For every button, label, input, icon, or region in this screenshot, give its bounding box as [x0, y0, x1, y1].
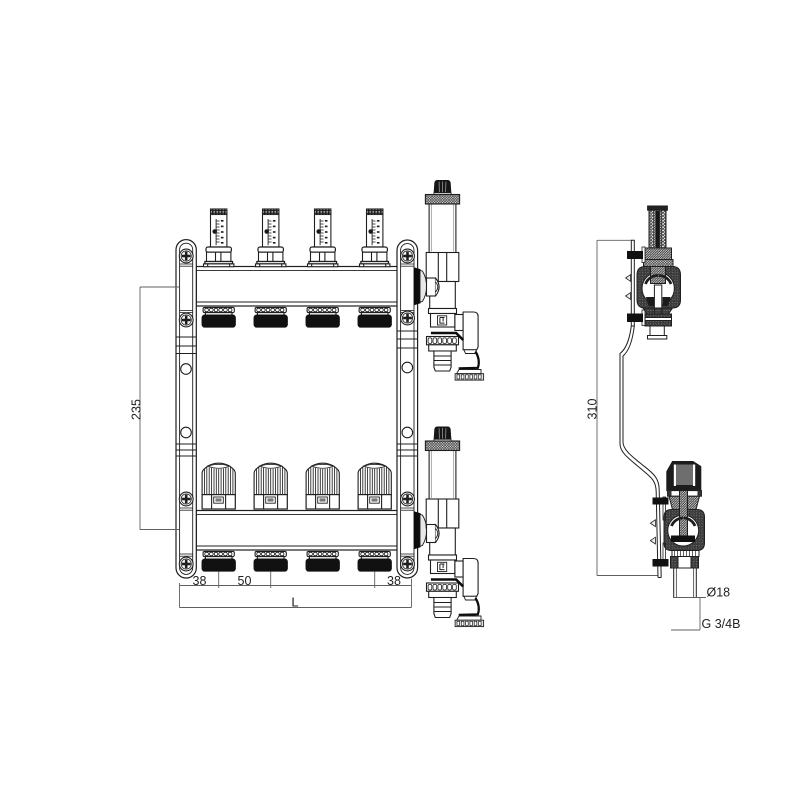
svg-text:L: L — [291, 595, 298, 610]
svg-text:Ø18: Ø18 — [707, 585, 731, 599]
svg-text:310: 310 — [586, 399, 600, 420]
svg-text:38: 38 — [193, 574, 207, 588]
svg-text:50: 50 — [238, 574, 252, 588]
svg-text:235: 235 — [129, 399, 143, 420]
svg-text:38: 38 — [387, 574, 401, 588]
svg-text:G 3/4B: G 3/4B — [702, 617, 741, 631]
